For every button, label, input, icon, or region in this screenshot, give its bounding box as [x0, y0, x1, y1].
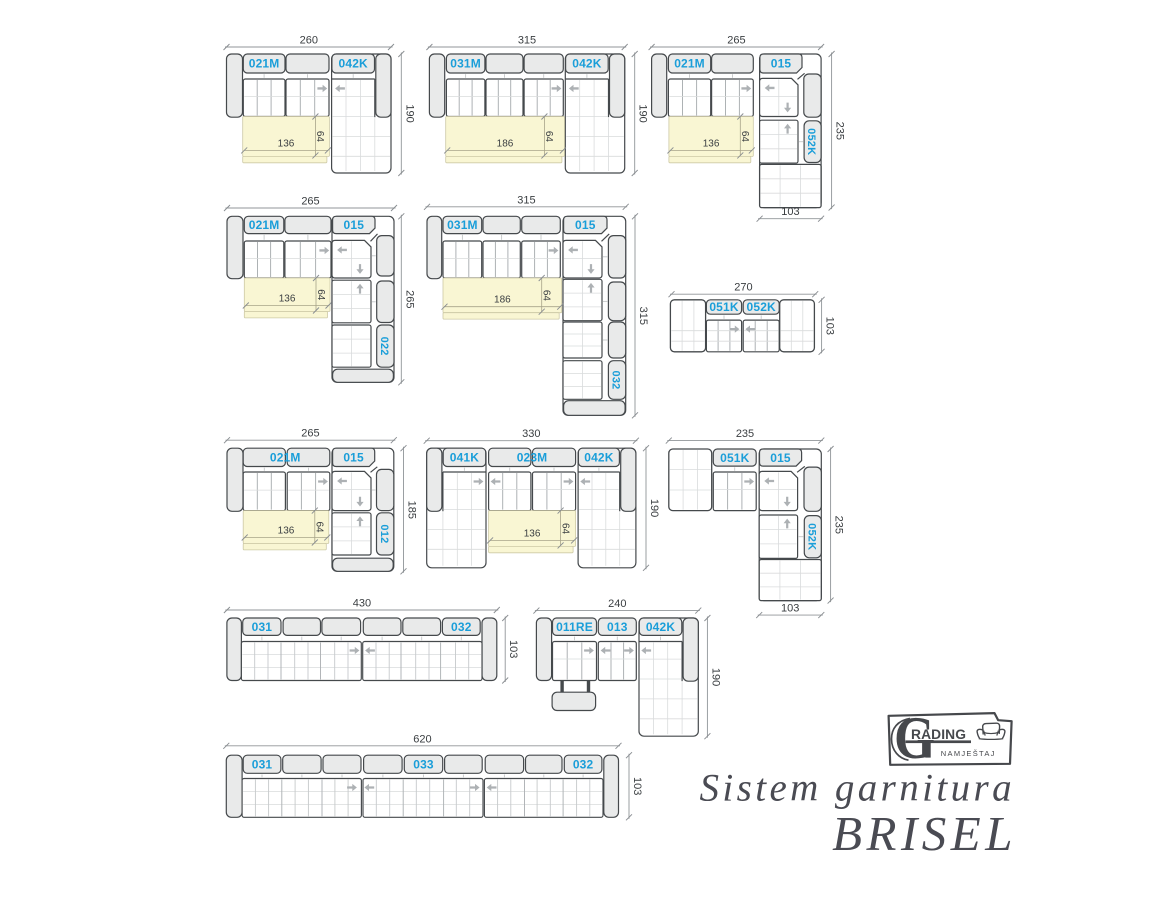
svg-text:103: 103 [631, 777, 643, 795]
svg-text:265: 265 [403, 290, 415, 308]
svg-text:103: 103 [781, 603, 799, 615]
svg-text:012: 012 [378, 524, 390, 543]
svg-text:235: 235 [736, 428, 754, 440]
svg-text:190: 190 [648, 499, 660, 517]
svg-text:185: 185 [406, 501, 418, 519]
svg-text:023M: 023M [517, 451, 548, 465]
svg-text:64: 64 [315, 289, 326, 301]
svg-text:021M: 021M [249, 57, 280, 71]
svg-text:103: 103 [507, 640, 519, 658]
svg-text:240: 240 [608, 598, 626, 610]
svg-text:015: 015 [344, 218, 365, 232]
svg-text:041K: 041K [450, 451, 479, 465]
svg-text:042K: 042K [572, 57, 601, 71]
svg-text:052K: 052K [805, 523, 817, 550]
svg-text:103: 103 [781, 206, 799, 218]
svg-text:052K: 052K [805, 128, 817, 155]
svg-text:022: 022 [378, 337, 390, 356]
svg-text:033: 033 [413, 758, 434, 772]
svg-text:315: 315 [518, 35, 536, 47]
svg-text:NAMJEŠTAJ: NAMJEŠTAJ [941, 749, 996, 758]
svg-text:042K: 042K [646, 620, 675, 634]
svg-text:265: 265 [727, 35, 745, 47]
svg-text:RADING: RADING [911, 727, 966, 742]
svg-text:260: 260 [300, 35, 318, 47]
svg-text:136: 136 [279, 294, 296, 305]
svg-text:190: 190 [637, 104, 649, 122]
svg-text:190: 190 [709, 668, 721, 686]
svg-text:136: 136 [278, 526, 295, 537]
svg-text:136: 136 [524, 528, 541, 539]
svg-text:015: 015 [575, 218, 596, 232]
svg-text:031: 031 [252, 620, 273, 634]
svg-text:136: 136 [278, 138, 295, 149]
svg-text:052K: 052K [747, 300, 776, 314]
svg-text:265: 265 [301, 428, 319, 440]
svg-text:032: 032 [610, 371, 622, 390]
svg-text:64: 64 [314, 131, 325, 143]
svg-text:032: 032 [451, 620, 472, 634]
svg-text:64: 64 [314, 521, 325, 533]
svg-text:64: 64 [739, 131, 750, 143]
svg-text:051K: 051K [709, 300, 738, 314]
svg-text:031: 031 [252, 758, 273, 772]
svg-text:013: 013 [607, 620, 628, 634]
svg-text:186: 186 [494, 295, 511, 306]
svg-text:64: 64 [559, 523, 570, 535]
svg-text:031M: 031M [447, 218, 478, 232]
svg-text:64: 64 [541, 290, 552, 302]
svg-text:031M: 031M [450, 57, 481, 71]
svg-text:315: 315 [517, 194, 535, 206]
svg-text:64: 64 [543, 131, 554, 143]
svg-text:011RE: 011RE [556, 620, 593, 634]
svg-text:042K: 042K [339, 57, 368, 71]
svg-text:021M: 021M [249, 218, 280, 232]
svg-text:103: 103 [824, 317, 836, 335]
svg-text:265: 265 [301, 196, 319, 208]
svg-text:430: 430 [353, 598, 371, 610]
svg-text:136: 136 [703, 138, 720, 149]
svg-text:270: 270 [734, 282, 752, 294]
svg-text:620: 620 [413, 733, 431, 745]
svg-text:BRISEL: BRISEL [832, 806, 1017, 861]
svg-text:235: 235 [833, 516, 845, 534]
svg-text:190: 190 [403, 104, 415, 122]
svg-text:Sistem garnitura: Sistem garnitura [700, 767, 1016, 810]
svg-text:330: 330 [522, 428, 540, 440]
svg-text:315: 315 [637, 307, 649, 325]
svg-text:186: 186 [497, 138, 514, 149]
svg-text:032: 032 [573, 758, 594, 772]
svg-text:015: 015 [771, 57, 792, 71]
svg-text:021M: 021M [674, 57, 705, 71]
svg-text:051K: 051K [720, 451, 749, 465]
svg-text:015: 015 [343, 451, 364, 465]
svg-text:021M: 021M [270, 451, 301, 465]
svg-text:235: 235 [834, 122, 846, 140]
svg-text:042K: 042K [584, 451, 613, 465]
svg-text:015: 015 [770, 451, 791, 465]
